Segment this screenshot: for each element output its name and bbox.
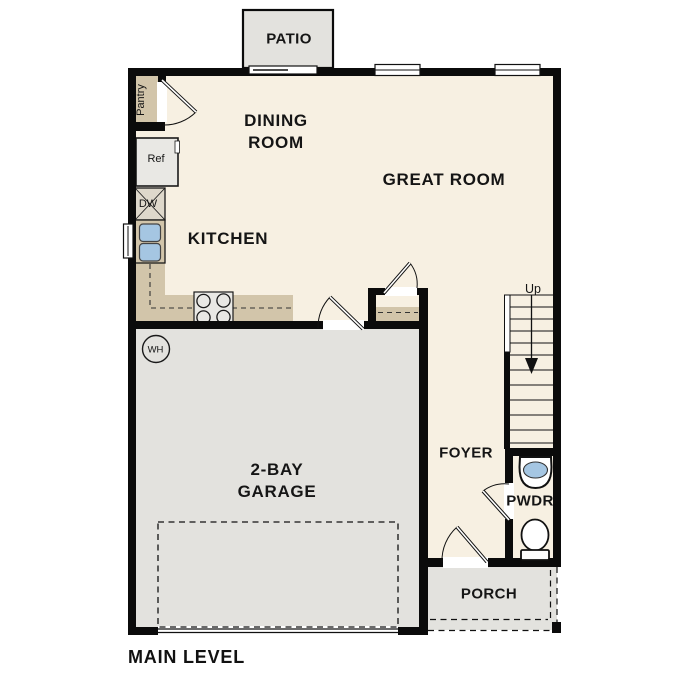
- stair-railing: [505, 295, 511, 352]
- label-water-heater: WH: [148, 344, 164, 355]
- room-label-porch: PORCH: [461, 586, 517, 603]
- wall-closet-top-right: [417, 288, 428, 295]
- wall-garage-top: [128, 321, 428, 329]
- room-label-powder: PWDR: [506, 493, 553, 510]
- label-refrigerator: Ref: [147, 153, 164, 165]
- window-great-room: [495, 65, 540, 76]
- closet-shelf: [376, 307, 419, 321]
- wall-pantry-stub: [158, 68, 166, 82]
- room-label-dining-room: DINING ROOM: [220, 110, 332, 154]
- wall-stairs-bottom: [505, 448, 558, 456]
- coat-closet: [376, 307, 419, 321]
- stove: [194, 292, 233, 324]
- room-label-kitchen: KITCHEN: [188, 229, 268, 249]
- wall-pantry-bottom: [128, 122, 165, 131]
- wall-garage-foyer: [419, 288, 428, 635]
- wall-left: [128, 68, 136, 635]
- room-label-patio: PATIO: [266, 31, 312, 48]
- wall-right: [553, 68, 561, 567]
- room-label-foyer: FOYER: [439, 445, 493, 462]
- room-label-garage: 2-BAY GARAGE: [227, 459, 327, 503]
- room-label-pantry: Pantry: [135, 84, 147, 116]
- porch-post: [552, 622, 561, 633]
- room-label-great-room: GREAT ROOM: [383, 170, 506, 190]
- window-kitchen: [124, 224, 134, 258]
- toilet: [521, 520, 549, 561]
- patio-sliding-door: [249, 66, 317, 74]
- window-dining: [375, 65, 420, 76]
- kitchen-sink: [135, 220, 165, 263]
- floor-plan-drawing: [0, 0, 687, 687]
- refrigerator-handle: [175, 141, 180, 153]
- label-dishwasher: DW: [139, 198, 157, 210]
- label-stairs-up: Up: [525, 282, 541, 296]
- floor-plan: PATIO Pantry DINING ROOM GREAT ROOM Ref …: [0, 0, 687, 687]
- wall-closet-top-left: [368, 288, 385, 295]
- page-title: MAIN LEVEL: [128, 647, 245, 668]
- powder-sink: [520, 457, 552, 488]
